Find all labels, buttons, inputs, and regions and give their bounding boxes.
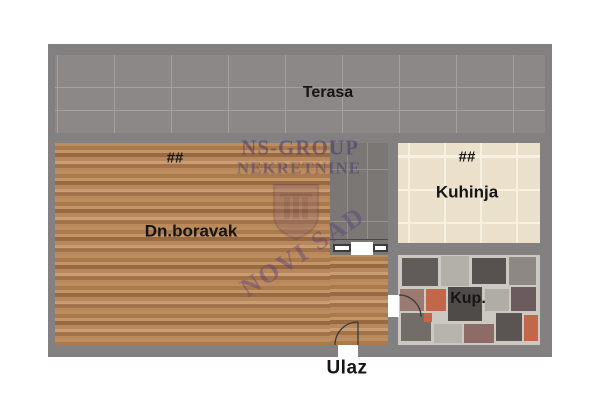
bathroom-tile bbox=[524, 315, 538, 341]
bathroom-tile bbox=[511, 287, 536, 311]
bathroom-tile bbox=[424, 313, 432, 322]
room-living-extension bbox=[330, 254, 388, 345]
entrance-label: Ulaz bbox=[326, 359, 367, 378]
bathroom-tile bbox=[509, 257, 536, 285]
bathroom-tile bbox=[402, 258, 438, 286]
bathroom-tile bbox=[464, 324, 494, 343]
bathroom-tile bbox=[441, 256, 469, 286]
interior-door-opening bbox=[351, 242, 373, 255]
watermark-agency-sub: NEKRETNINE bbox=[237, 160, 361, 177]
terrace-label: Terasa bbox=[303, 85, 353, 101]
bathroom-tile bbox=[434, 324, 462, 343]
kitchen-marker: ## bbox=[459, 150, 476, 165]
floor-plan: NS-GROUP NEKRETNINE NOVI SAD Terasa ## D… bbox=[0, 0, 600, 404]
bathroom-tile bbox=[496, 313, 522, 341]
kitchen-label: Kuhinja bbox=[436, 184, 498, 201]
room-terrace bbox=[55, 55, 545, 133]
bathroom-tile bbox=[485, 289, 509, 311]
entrance-door-opening bbox=[338, 345, 358, 357]
door-sidelight-right bbox=[373, 244, 388, 252]
bathroom-door-leaf bbox=[388, 295, 399, 317]
bathroom-tile bbox=[400, 289, 424, 311]
living-room-label: Dn.boravak bbox=[145, 223, 238, 240]
bathroom-tile bbox=[426, 289, 446, 311]
bathroom-tile bbox=[472, 258, 506, 284]
living-room-marker: ## bbox=[167, 151, 184, 166]
bathroom-label: Kup. bbox=[450, 291, 486, 307]
watermark-agency-name: NS-GROUP bbox=[241, 138, 359, 159]
